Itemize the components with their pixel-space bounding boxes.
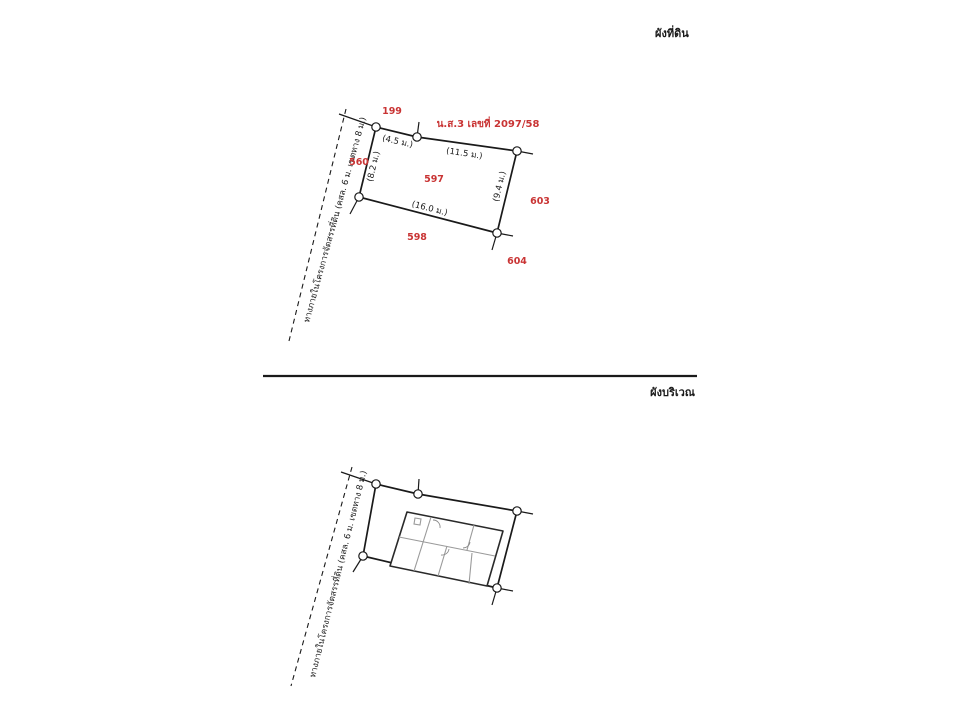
survey-marker bbox=[372, 480, 380, 488]
survey-marker bbox=[413, 133, 421, 141]
parcel-number-west: 560 bbox=[349, 157, 369, 168]
survey-document-page: ผังที่ดิน ผังบริเวณ ทางภายในโครงการจัดสร… bbox=[0, 0, 960, 720]
survey-marker bbox=[372, 123, 380, 131]
survey-marker bbox=[513, 147, 521, 155]
land-plan-title: ผังที่ดิน bbox=[655, 25, 689, 40]
road-label: ทางภายในโครงการจัดสรรที่ดิน (คสล. 6 ม. เ… bbox=[306, 469, 369, 678]
survey-marker bbox=[493, 584, 501, 592]
parcel-number-south: 598 bbox=[407, 232, 427, 243]
parcel-number-north: 199 bbox=[382, 106, 402, 117]
road-label: ทางภายในโครงการจัดสรรที่ดิน (คสล. 6 ม. เ… bbox=[300, 115, 368, 323]
survey-marker bbox=[359, 552, 367, 560]
site-plan-title: ผังบริเวณ bbox=[650, 386, 696, 399]
survey-drawing-canvas: ผังที่ดิน ผังบริเวณ ทางภายในโครงการจัดสร… bbox=[0, 0, 960, 720]
parcel-number-east: 603 bbox=[530, 196, 550, 207]
survey-marker bbox=[493, 229, 501, 237]
survey-marker bbox=[513, 507, 521, 515]
land-plan-diagram: ทางภายในโครงการจัดสรรที่ดิน (คสล. 6 ม. เ… bbox=[289, 106, 550, 341]
survey-marker bbox=[414, 490, 422, 498]
site-plan-diagram: ทางภายในโครงการจัดสรรที่ดิน (คสล. 6 ม. เ… bbox=[291, 467, 533, 686]
parcel-number-southeast: 604 bbox=[507, 256, 527, 267]
parcel-number-center: 597 bbox=[424, 174, 444, 185]
survey-marker bbox=[355, 193, 363, 201]
deed-number-label: น.ส.3 เลขที่ 2097/58 bbox=[437, 116, 540, 130]
